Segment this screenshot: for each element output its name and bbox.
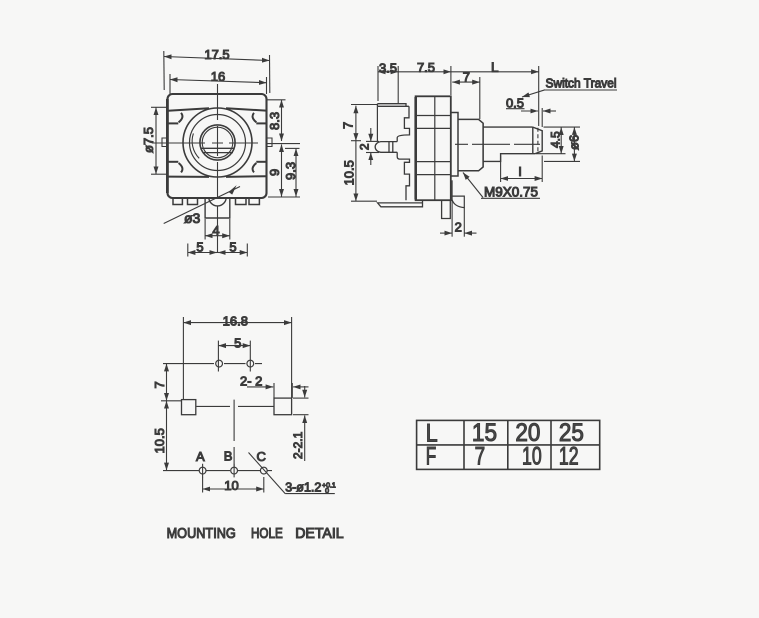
svg-text:4.5: 4.5 bbox=[549, 131, 563, 148]
svg-text:7: 7 bbox=[475, 443, 486, 471]
svg-text:I: I bbox=[518, 164, 522, 179]
svg-text:2: 2 bbox=[358, 143, 372, 150]
svg-text:ø6: ø6 bbox=[567, 135, 582, 150]
svg-text:16.8: 16.8 bbox=[223, 314, 248, 329]
svg-text:7: 7 bbox=[341, 122, 356, 129]
svg-text:3.5: 3.5 bbox=[379, 61, 397, 76]
svg-text:9.3: 9.3 bbox=[283, 162, 298, 180]
svg-text:2: 2 bbox=[455, 220, 462, 235]
svg-text:C: C bbox=[257, 449, 266, 464]
svg-text:3-ø1.2: 3-ø1.2 bbox=[285, 481, 321, 495]
svg-text:5: 5 bbox=[234, 336, 241, 351]
svg-text:F: F bbox=[426, 443, 437, 471]
svg-text:ø7.5: ø7.5 bbox=[141, 127, 156, 153]
svg-text:10: 10 bbox=[224, 478, 238, 493]
svg-text:7: 7 bbox=[152, 381, 167, 388]
svg-text:2- 2: 2- 2 bbox=[240, 374, 262, 389]
svg-text:10: 10 bbox=[522, 443, 542, 471]
svg-text:ø3: ø3 bbox=[184, 210, 201, 226]
svg-text:HOLE: HOLE bbox=[251, 526, 283, 542]
svg-text:10.5: 10.5 bbox=[152, 428, 167, 453]
svg-text:Switch Travel: Switch Travel bbox=[546, 77, 617, 91]
svg-text:16: 16 bbox=[211, 69, 225, 84]
svg-text:12: 12 bbox=[559, 443, 579, 471]
svg-text:9: 9 bbox=[267, 169, 282, 176]
svg-text:7.5: 7.5 bbox=[417, 60, 435, 75]
svg-text:DETAIL: DETAIL bbox=[295, 526, 344, 542]
svg-text:4: 4 bbox=[212, 223, 219, 238]
svg-text:B: B bbox=[224, 449, 233, 464]
svg-text:L: L bbox=[491, 60, 499, 75]
svg-text:7: 7 bbox=[463, 70, 470, 85]
svg-text:5: 5 bbox=[196, 240, 203, 255]
svg-text:MOUNTING: MOUNTING bbox=[167, 526, 236, 542]
svg-text:A: A bbox=[196, 449, 205, 464]
svg-text:M9X0.75: M9X0.75 bbox=[484, 185, 538, 200]
svg-text:2-2.1: 2-2.1 bbox=[291, 431, 305, 459]
svg-text:5: 5 bbox=[229, 240, 236, 255]
svg-text:17.5: 17.5 bbox=[204, 47, 229, 62]
svg-text:10.5: 10.5 bbox=[342, 160, 357, 185]
svg-text:8.3: 8.3 bbox=[267, 112, 282, 130]
svg-text:0: 0 bbox=[324, 488, 329, 495]
svg-text:0.5: 0.5 bbox=[506, 96, 524, 111]
